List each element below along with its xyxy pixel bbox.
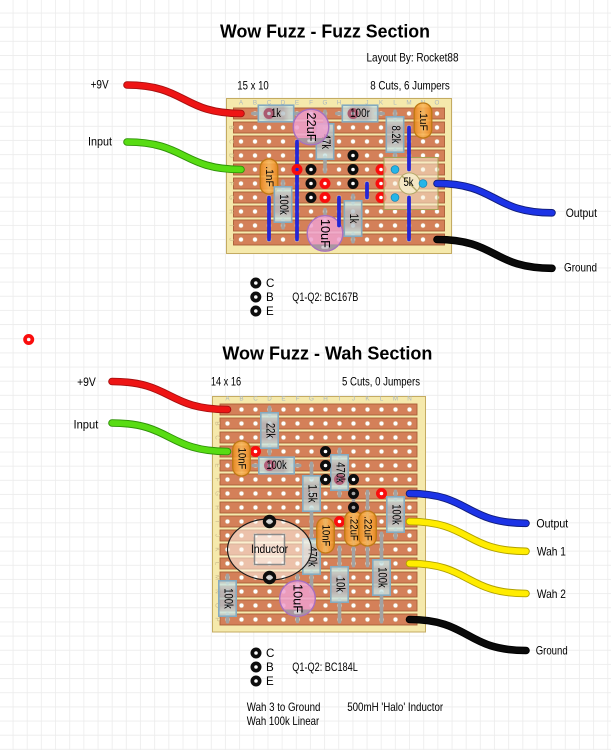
svg-text:J: J: [228, 238, 235, 241]
svg-text:Input: Input: [74, 418, 100, 431]
svg-text:100k: 100k: [376, 567, 388, 588]
svg-text:10nF: 10nF: [236, 448, 248, 470]
svg-text:L: L: [214, 562, 221, 566]
svg-text:8.2k: 8.2k: [389, 126, 401, 144]
svg-text:G: G: [309, 396, 314, 403]
svg-text:B: B: [214, 421, 221, 425]
svg-text:B: B: [239, 396, 243, 403]
svg-text:22uF: 22uF: [304, 113, 318, 142]
svg-text:100k: 100k: [390, 504, 402, 525]
svg-text:D: D: [267, 396, 272, 403]
svg-text:Wow Fuzz - Fuzz Section: Wow Fuzz - Fuzz Section: [220, 22, 430, 42]
svg-text:5k: 5k: [404, 177, 414, 189]
svg-text:Wah 1: Wah 1: [537, 546, 566, 559]
svg-text:.22uF: .22uF: [362, 516, 374, 541]
svg-text:Ground: Ground: [564, 262, 597, 275]
svg-text:10uF: 10uF: [291, 584, 305, 613]
svg-text:Input: Input: [88, 136, 113, 149]
svg-text:10k: 10k: [334, 577, 346, 592]
svg-text:500mH 'Halo' Inductor: 500mH 'Halo' Inductor: [347, 701, 443, 714]
svg-text:C: C: [228, 139, 235, 144]
svg-text:J: J: [352, 396, 355, 403]
svg-text:.1nF: .1nF: [263, 166, 275, 187]
svg-text:5 Cuts, 0 Jumpers: 5 Cuts, 0 Jumpers: [342, 376, 420, 389]
svg-text:E: E: [281, 396, 285, 403]
svg-text:1k: 1k: [347, 214, 359, 224]
svg-text:F: F: [214, 478, 221, 482]
svg-text:P: P: [214, 617, 221, 621]
svg-text:L: L: [380, 396, 384, 403]
svg-text:+9V: +9V: [91, 79, 109, 92]
svg-text:I: I: [214, 521, 221, 523]
svg-text:G: G: [214, 491, 221, 496]
svg-text:B: B: [266, 291, 274, 304]
svg-text:B: B: [253, 100, 257, 107]
svg-text:F: F: [296, 396, 300, 403]
svg-text:Layout By: Rocket88: Layout By: Rocket88: [367, 52, 459, 65]
svg-text:E: E: [266, 675, 274, 688]
svg-text:Output: Output: [536, 518, 569, 531]
svg-text:100k: 100k: [277, 194, 289, 215]
svg-text:Wah 3 to Ground: Wah 3 to Ground: [247, 701, 321, 714]
svg-text:H: H: [214, 505, 221, 510]
svg-text:100k: 100k: [222, 588, 234, 609]
svg-text:I: I: [339, 396, 341, 403]
svg-text:.22uF: .22uF: [348, 516, 360, 541]
svg-text:Inductor: Inductor: [251, 544, 288, 556]
svg-text:C: C: [214, 435, 221, 440]
svg-text:M: M: [214, 575, 221, 580]
svg-text:22k: 22k: [264, 423, 276, 438]
svg-text:470k: 470k: [334, 462, 346, 483]
svg-text:B: B: [228, 125, 235, 129]
svg-text:F: F: [228, 182, 235, 186]
svg-text:L: L: [393, 100, 397, 107]
svg-text:15 x 10: 15 x 10: [237, 80, 269, 93]
svg-text:Q1-Q2: BC167B: Q1-Q2: BC167B: [292, 291, 358, 304]
svg-text:Wow Fuzz - Wah Section: Wow Fuzz - Wah Section: [222, 344, 432, 364]
svg-text:C: C: [266, 277, 274, 290]
svg-text:10uF: 10uF: [318, 219, 332, 248]
svg-text:1k: 1k: [271, 108, 281, 120]
svg-text:I: I: [228, 225, 235, 227]
svg-text:+9V: +9V: [77, 376, 96, 389]
svg-text:G: G: [323, 100, 328, 107]
svg-text:.1uF: .1uF: [417, 110, 429, 131]
svg-text:14 x 16: 14 x 16: [211, 376, 241, 389]
svg-text:1.5k: 1.5k: [306, 485, 318, 503]
svg-text:E: E: [266, 305, 274, 318]
svg-text:G: G: [228, 195, 235, 200]
svg-text:Output: Output: [566, 207, 598, 220]
svg-text:O: O: [435, 100, 440, 107]
svg-text:8 Cuts, 6 Jumpers: 8 Cuts, 6 Jumpers: [370, 80, 450, 93]
svg-text:E: E: [295, 100, 299, 107]
svg-text:C: C: [253, 396, 258, 403]
svg-text:H: H: [228, 209, 235, 214]
svg-text:100k: 100k: [266, 460, 287, 472]
svg-text:H: H: [323, 396, 328, 403]
svg-text:Q1-Q2: BC184L: Q1-Q2: BC184L: [292, 661, 358, 674]
svg-text:M: M: [406, 100, 411, 107]
svg-text:C: C: [266, 647, 274, 660]
svg-text:M: M: [393, 396, 398, 403]
svg-text:B: B: [266, 661, 274, 674]
svg-text:H: H: [337, 100, 342, 107]
svg-text:Wah 2: Wah 2: [537, 588, 566, 601]
svg-text:Ground: Ground: [536, 645, 568, 658]
svg-text:100r: 100r: [350, 108, 370, 120]
svg-text:N: N: [407, 396, 412, 403]
svg-text:10nF: 10nF: [320, 525, 332, 547]
svg-text:F: F: [309, 100, 313, 107]
svg-text:D: D: [228, 153, 235, 158]
svg-text:E: E: [214, 463, 221, 467]
svg-text:Wah 100k Linear: Wah 100k Linear: [247, 715, 320, 728]
svg-text:J: J: [214, 534, 221, 537]
